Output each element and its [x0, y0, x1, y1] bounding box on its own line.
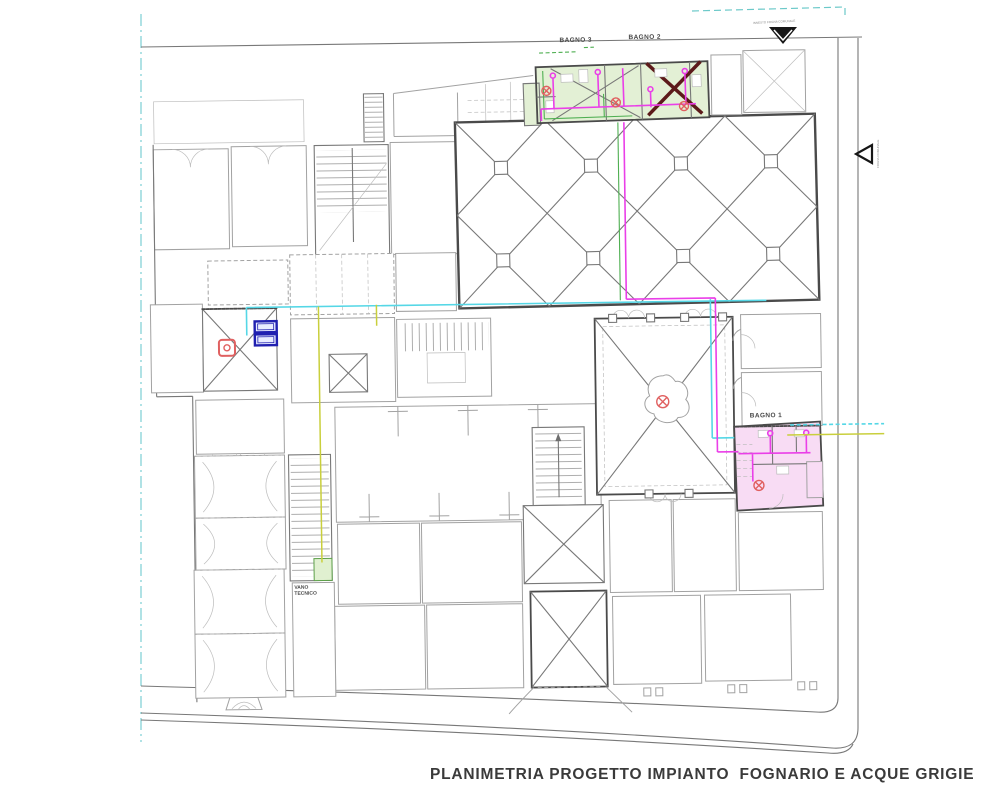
room — [337, 523, 420, 604]
outfall-right: FOGNA COMUNALE — [856, 140, 880, 168]
sewer-note-top: INNESTO FOGNA COMUNALE — [753, 19, 796, 25]
room — [390, 142, 458, 255]
room — [704, 594, 791, 681]
sewer-outfall-arrow-icon — [769, 27, 797, 44]
barrel-room — [194, 455, 285, 518]
bagno-1-label: BAGNO 1 — [750, 412, 783, 419]
room — [208, 260, 289, 305]
stairwell-northwest — [314, 145, 390, 258]
boundary-dashed-top — [692, 7, 845, 19]
drawing-sheet: VANO TECNICO — [0, 0, 1000, 800]
stairwell-central — [397, 318, 492, 397]
room — [196, 399, 285, 454]
south-wing — [291, 498, 825, 717]
bathroom-block-bagno-2-3 — [522, 43, 710, 125]
great-hall — [455, 114, 819, 309]
room — [335, 605, 426, 690]
vaulted-room-northeast — [743, 50, 806, 113]
room — [738, 512, 823, 591]
room — [612, 595, 701, 684]
room — [150, 304, 203, 393]
building-plan: VANO TECNICO — [147, 31, 888, 719]
street-funnel — [509, 686, 632, 714]
bagno-3-label: BAGNO 3 — [559, 37, 592, 44]
barrel-room — [194, 569, 285, 634]
room — [427, 604, 524, 689]
room — [231, 146, 307, 247]
west-court-block — [150, 300, 491, 405]
property-line-top — [141, 37, 862, 47]
barrel-room — [195, 517, 286, 570]
room — [711, 55, 742, 115]
room — [292, 582, 336, 697]
bagno-2-label: BAGNO 2 — [628, 34, 661, 41]
portico-hall — [335, 404, 602, 523]
room — [153, 149, 229, 250]
central-courtyard — [594, 309, 747, 503]
vent-terminal-box — [314, 558, 332, 580]
sewer-note-right: FOGNA COMUNALE — [876, 140, 880, 168]
bathroom-bagno-1: BAGNO 1 — [734, 412, 823, 511]
drawing-title: PLANIMETRIA PROGETTO IMPIANTO FOGNARIO E… — [430, 766, 974, 783]
barrel-room — [195, 633, 286, 698]
vano-tecnico-label-line2: TECNICO — [294, 591, 317, 597]
stairwell-court — [532, 427, 585, 506]
east-rooms — [741, 314, 823, 427]
room — [421, 522, 522, 603]
inspection-chamber-icon — [255, 321, 277, 345]
room — [673, 499, 736, 592]
outfall-top: INNESTO FOGNA COMUNALE — [753, 19, 797, 44]
road-line — [141, 720, 853, 753]
floor-plan-canvas: VANO TECNICO — [0, 0, 1000, 800]
room — [396, 253, 457, 312]
room — [609, 500, 672, 593]
apse-porch — [226, 697, 262, 710]
